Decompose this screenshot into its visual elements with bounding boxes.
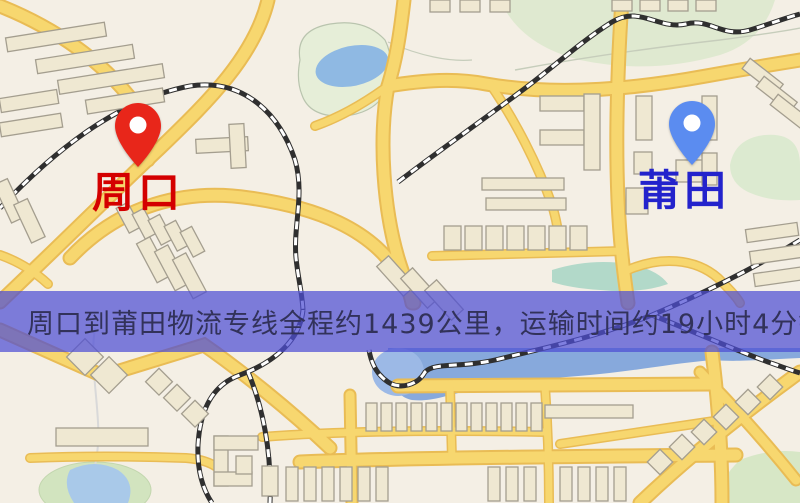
origin-pin[interactable] xyxy=(114,102,162,168)
route-info-banner: 周口到莆田物流专线全程约1439公里，运输时间约19小时4分钟. xyxy=(0,291,800,352)
route-info-text: 周口到莆田物流专线全程约1439公里，运输时间约19小时4分钟. xyxy=(0,302,800,341)
origin-label: 周口 xyxy=(92,172,184,214)
map-pin-icon xyxy=(114,102,162,168)
map-canvas xyxy=(0,0,800,503)
destination-label: 莆田 xyxy=(638,170,730,212)
destination-pin[interactable] xyxy=(668,100,716,166)
map-pin-icon xyxy=(668,100,716,166)
map[interactable] xyxy=(0,0,800,503)
